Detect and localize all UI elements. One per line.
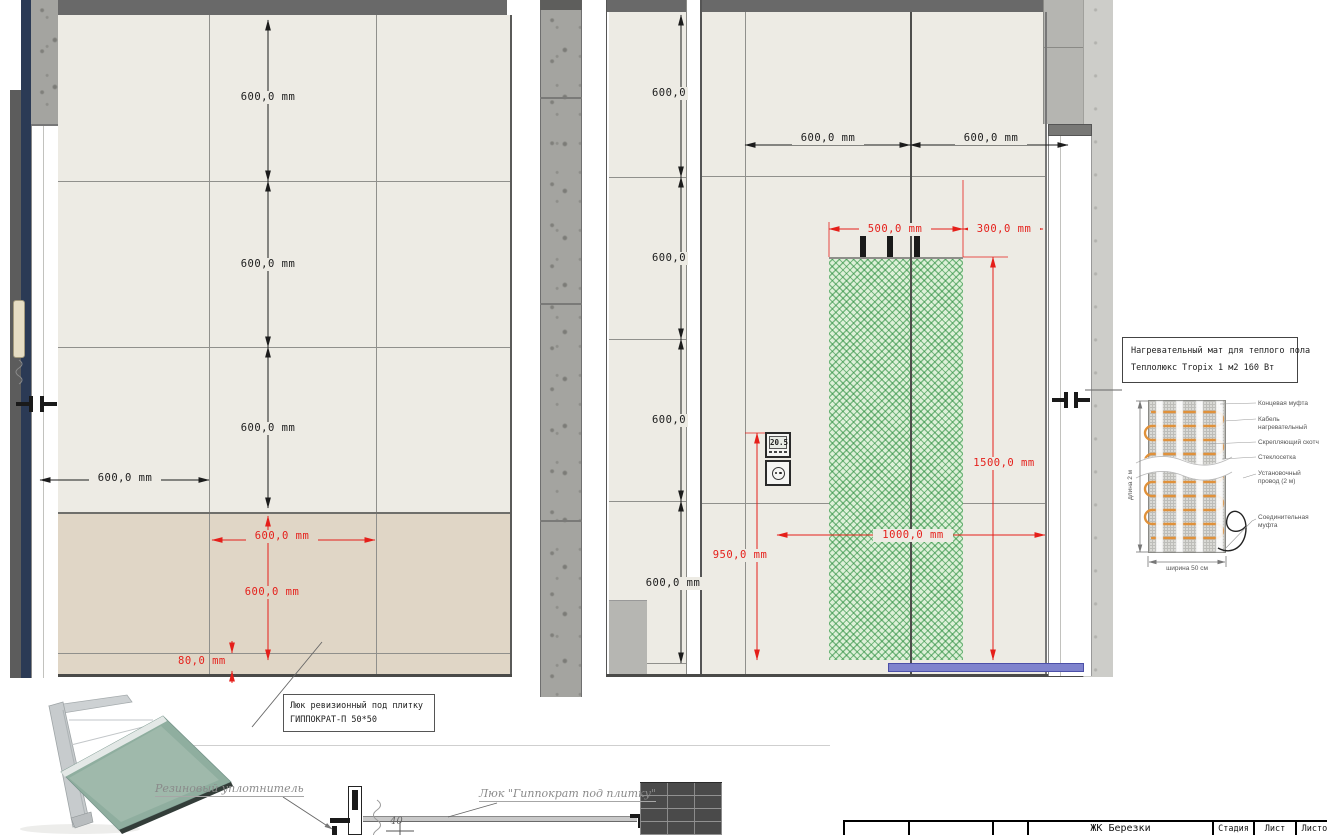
dim-text-red: 500,0 mm	[859, 223, 931, 236]
mat-label-connect-coupling: Соединительная муфта	[1258, 514, 1320, 530]
hatch-callout-line2: ГИППОКРАТ-П 50*50	[290, 713, 434, 727]
hatch-frame-fill	[352, 790, 358, 810]
dim-text: 600,0 mm	[232, 422, 304, 435]
hatch-callout-line1: Люк ревизионный под плитку	[290, 699, 434, 713]
tile-joint	[58, 653, 510, 654]
dim-text: 600,0 mm	[792, 132, 864, 145]
tile-joint	[609, 501, 686, 502]
separator-line	[148, 745, 830, 746]
dim-text: 600,0 mm	[89, 472, 161, 485]
hatch-3d-photo	[5, 690, 240, 835]
dim-text: 600,0 mm	[642, 577, 704, 590]
heating-mat-title-line2: Теплолюкс Tropix 1 м2 160 Вт	[1131, 360, 1289, 377]
door-lintel	[1048, 124, 1092, 136]
ceiling-band-right-main	[702, 0, 1046, 12]
heating-mat-area	[829, 257, 963, 660]
tile-joint	[209, 15, 210, 674]
dim-text-red: 600,0 mm	[236, 586, 308, 599]
heating-mat-title-box: Нагревательный мат для теплого пола Тепл…	[1122, 337, 1298, 383]
title-block-divider	[992, 820, 994, 835]
baseboard-purple	[888, 663, 1084, 672]
tile-joint	[1043, 47, 1083, 48]
column-joint	[540, 520, 582, 522]
ceiling-band-left	[58, 0, 507, 15]
dim-text-red: 1000,0 mm	[873, 529, 953, 542]
dim-text: 600,0 mm	[955, 132, 1027, 145]
title-block-project: ЖК Березки	[1029, 823, 1212, 834]
tile-joint-center	[910, 12, 912, 674]
door-leaf-line	[1060, 136, 1061, 676]
mat-label-install-wire: Установочный провод (2 м)	[1258, 470, 1320, 486]
tile-joint	[58, 181, 510, 182]
label-rubber-seal: Резиновый уплотнитель	[155, 782, 304, 797]
cable-conduit-mark	[914, 236, 920, 257]
floor-line-right	[606, 674, 1086, 677]
mat-label-end-coupling: Концевая муфта	[1258, 400, 1324, 408]
title-block-col-sheets: Листов	[1297, 824, 1327, 834]
strip-left-edge	[606, 0, 607, 676]
column-joint	[540, 97, 582, 99]
dim-text-red: 950,0 mm	[704, 549, 776, 562]
door-handle-right-b-stub	[1074, 392, 1078, 408]
ceiling-band-right-strip	[606, 0, 686, 12]
strip-gray-base	[609, 600, 647, 674]
tile-joint	[58, 512, 510, 514]
mat-dim-length: длина 2 м	[1127, 470, 1135, 500]
floor-line-left	[58, 674, 512, 677]
wall-section-strip-left	[10, 90, 21, 678]
dim-text: 600,0	[650, 414, 688, 427]
label-hatch-gippokrat: Люк "Гиппократ под плитку"	[479, 787, 656, 802]
title-block-divider	[908, 820, 910, 835]
cable-conduit-mark	[860, 236, 866, 257]
dim-text-red: 1500,0 mm	[964, 457, 1044, 470]
thermostat-buttons	[767, 451, 789, 453]
wall-right-edge-left-elevation	[510, 15, 512, 674]
title-block-col-sheet: Лист	[1255, 824, 1295, 834]
wall-edge-at-door	[1045, 12, 1047, 674]
drawing-canvas: 20.5 Нагревательный мат для теплого пола…	[0, 0, 1327, 835]
column-cap	[540, 0, 582, 10]
tile-joint	[609, 177, 686, 178]
door-leaf-right	[1048, 136, 1092, 676]
hatch-frame-leg	[332, 826, 337, 835]
title-block-divider	[843, 820, 845, 835]
dim-text-red: 600,0 mm	[246, 530, 318, 543]
hatch-callout-box: Люк ревизионный под плитку ГИППОКРАТ-П 5…	[283, 694, 435, 732]
dim-text-red: 300,0 mm	[968, 223, 1040, 236]
door-handle-left-inner-stub	[40, 396, 44, 412]
door-handle-left-outer-stub	[29, 396, 33, 412]
wall-above-door	[1043, 0, 1083, 124]
concrete-column	[540, 10, 582, 697]
thermostat-display: 20.5	[769, 436, 787, 449]
tile-joint	[376, 15, 377, 674]
strip-right-edge	[686, 0, 687, 676]
title-block-col-stage: Стадия	[1214, 824, 1253, 834]
cable-conduit-mark	[887, 236, 893, 257]
heating-mat-title-line1: Нагревательный мат для теплого пола	[1131, 343, 1289, 360]
hatch-lid-section	[363, 816, 637, 822]
mat-label-heating-cable: Кабель нагревательный	[1258, 416, 1326, 432]
dim-text: 600,0	[650, 87, 688, 100]
dim-40: 40	[390, 816, 403, 827]
dim-text: 600,0 mm	[232, 258, 304, 271]
door-closer-photo	[13, 300, 25, 358]
mat-label-tape: Скрепляющий скотч	[1258, 439, 1324, 447]
mat-label-fiberglass: Стеклосетка	[1258, 454, 1324, 462]
thermostat: 20.5	[765, 432, 791, 458]
door-handle-right-a-stub	[1064, 392, 1068, 408]
tile-joint	[745, 12, 746, 674]
tile-joint	[702, 176, 1046, 177]
dim-text: 600,0 mm	[232, 91, 304, 104]
mat-diagram-mesh	[1148, 400, 1226, 553]
column-joint	[540, 303, 582, 305]
tile-strip-right	[609, 12, 686, 674]
mat-dim-width: ширина 50 см	[1152, 565, 1222, 573]
tile-joint	[609, 339, 686, 340]
hatch-frame-bracket	[330, 818, 350, 823]
tile-joint	[58, 347, 510, 348]
power-socket-icon	[765, 460, 791, 486]
dim-text: 600,0	[650, 252, 688, 265]
dim-text-red: 80,0 mm	[178, 655, 234, 668]
